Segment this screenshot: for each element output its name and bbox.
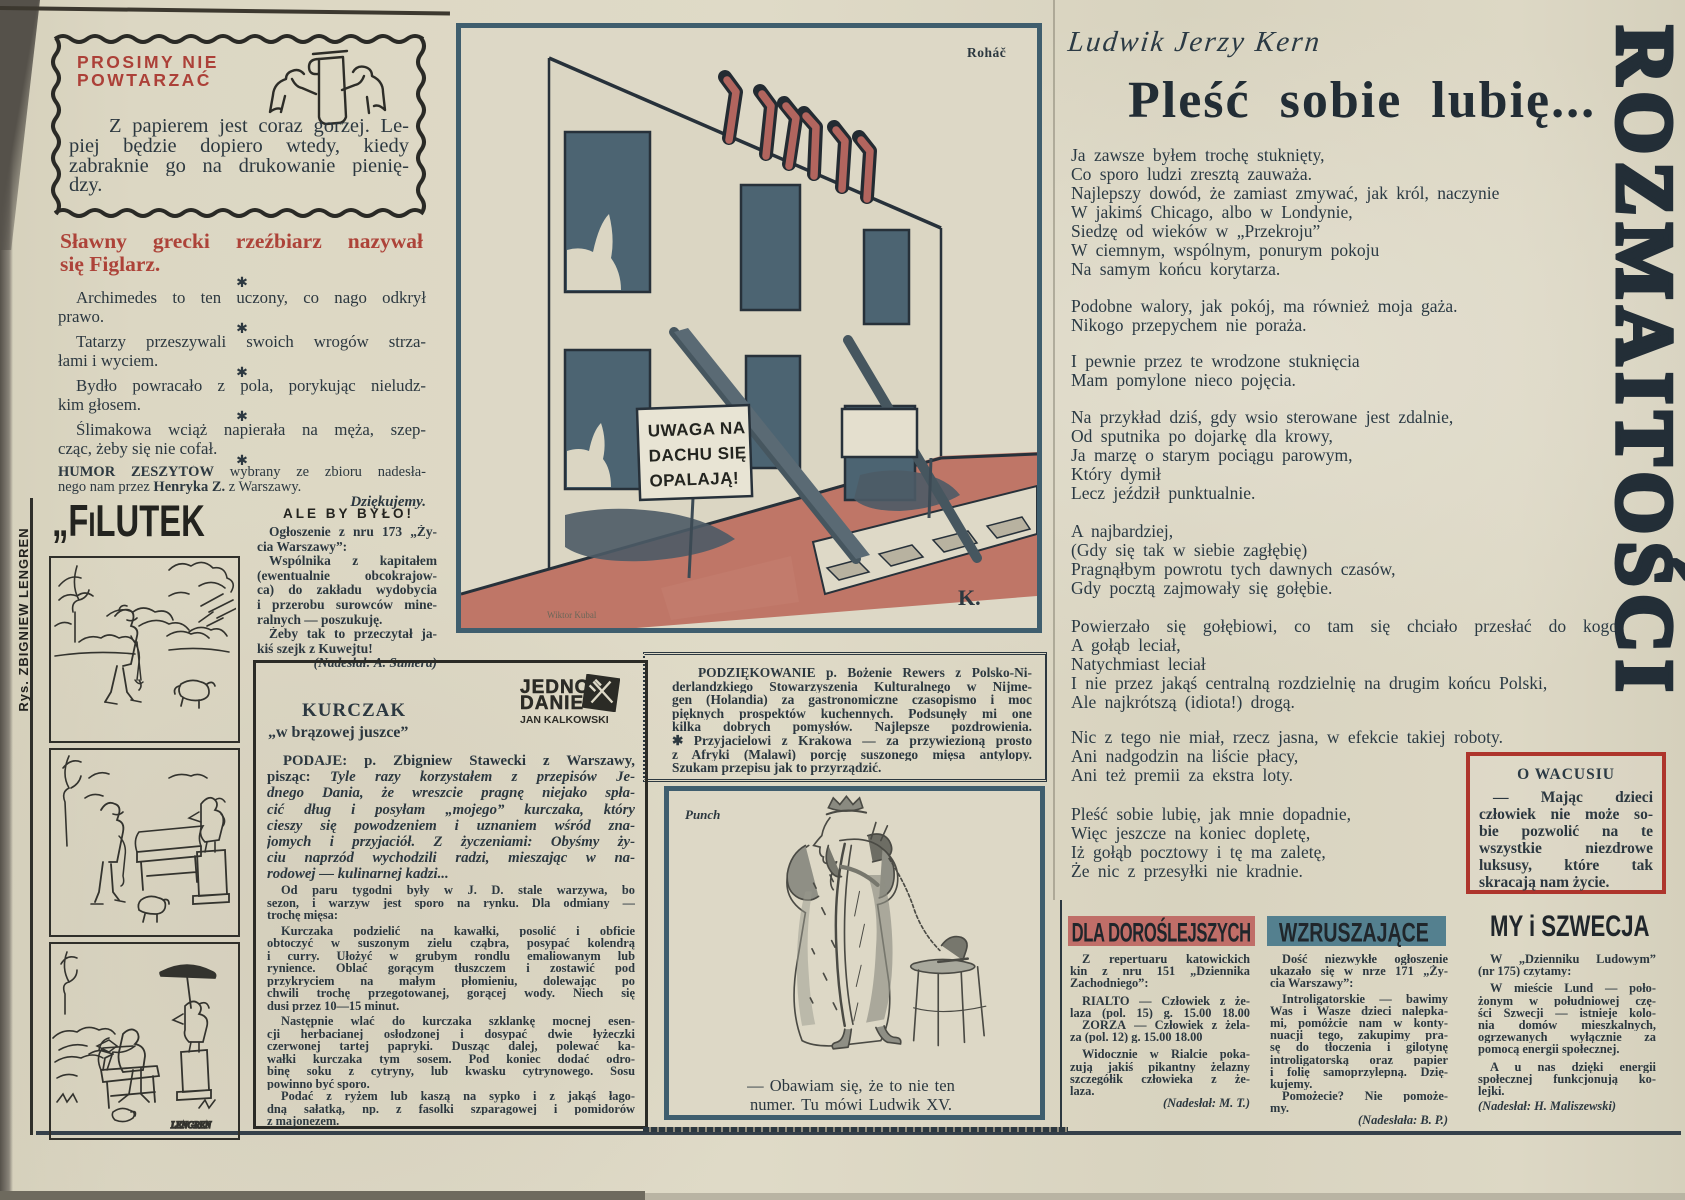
- svg-text:OPALAJĄ!: OPALAJĄ!: [649, 468, 739, 490]
- svg-text:LENGREN: LENGREN: [170, 1120, 212, 1130]
- svg-text:Wiktor Kubal: Wiktor Kubal: [547, 610, 597, 620]
- svg-text:K.: K.: [958, 585, 981, 610]
- svg-text:UWAGA NA: UWAGA NA: [647, 418, 745, 440]
- svg-text:DACHU SIĘ: DACHU SIĘ: [648, 443, 747, 465]
